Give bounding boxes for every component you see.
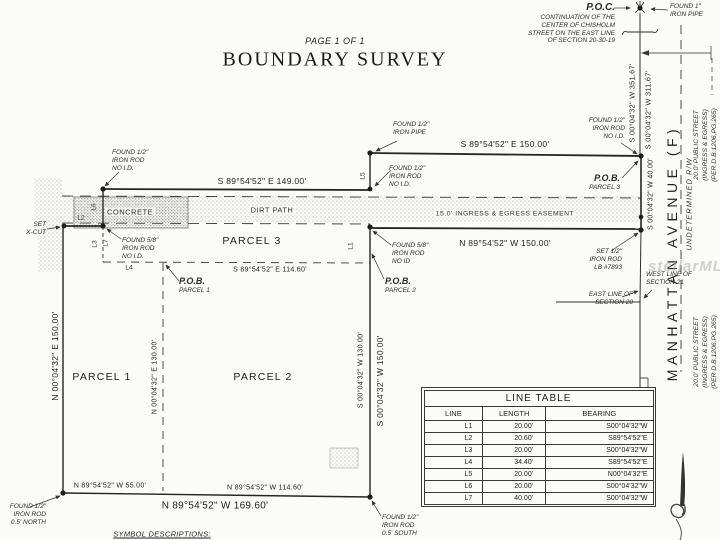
line-tag-l6: L6 (91, 203, 98, 210)
pob-parcel2-label: P.O.B. PARCEL 2 (385, 276, 416, 295)
dim-east-150: S 00°04'32" W 150.00' (375, 335, 385, 426)
line-tag-l1: L1 (348, 242, 355, 249)
parcel-3-label: PARCEL 3 (222, 235, 281, 247)
concrete-area (34, 178, 188, 272)
dirt-path-label: DIRT PATH (249, 206, 296, 215)
dim-bottom-114: N 89°54'52" W 114.60' (227, 485, 303, 492)
col-header-line: LINE (424, 406, 483, 420)
line-tag-l3: L3 (92, 240, 99, 247)
dim-351: S 00°04'32" W 351.67' (628, 63, 637, 142)
line-tag-l7: L7 (103, 239, 110, 246)
pob-parcel3-label: P.O.B. PARCEL 3 (560, 173, 620, 192)
dim-west-150: N 00°04'32" E 150.00' (50, 311, 60, 400)
dim-mid-114: S 89°54'52" E 114.60' (233, 267, 307, 274)
parcel-2-label: PARCEL 2 (233, 371, 292, 383)
found-58-rod-2-label: FOUND 5/8" IRON ROD NO ID (392, 242, 428, 265)
page-label: PAGE 1 OF 1 (305, 36, 365, 46)
dim-bottom-55: N 89°54'52" W 55.00' (74, 483, 146, 490)
dim-311: S 00°04'32" W 311.67' (644, 71, 653, 150)
table-row: L3 20.00' S00°04'32"W (424, 444, 653, 456)
table-row: L7 40.00' S00°04'32"W (424, 492, 653, 504)
found-bl-label: FOUND 1/2" IRON ROD 0.5' NORTH (2, 503, 46, 526)
public-street-bottom-label: 20.0' PUBLIC STREET (INGRESS & EGRESS) (… (693, 315, 719, 389)
dim-top-149: S 89°54'52" E 149.00' (218, 176, 307, 186)
dim-n-150: N 89°54'52" W 150.00' (459, 238, 551, 248)
parcel-1-label: PARCEL 1 (72, 371, 131, 383)
found-half-pipe-label: FOUND 1/2" IRON PIPE (393, 121, 429, 137)
line-table: LINE TABLE LINE LENGTH BEARING L1 20.00'… (421, 387, 656, 507)
line-tag-l4: L4 (125, 265, 132, 272)
dim-mid-130: N 00°04'32" E 130.00' (152, 340, 159, 415)
stipple-patch (330, 448, 358, 468)
page-title: BOUNDARY SURVEY (223, 49, 448, 72)
dim-top-150: S 89°54'52" E 150.00' (461, 139, 550, 149)
found-br-label: FOUND 1/2" IRON ROD 0.5' SOUTH (382, 514, 418, 537)
poc-note: P.O.C. CONTINUATION OF THE CENTER OF CHI… (495, 2, 615, 45)
set-half-rod-label: SET 1/2" IRON ROD LB #7893 (562, 248, 622, 271)
line-tag-l2: L2 (77, 215, 84, 222)
easement-label: 15.0' INGRESS & EGRESS EASEMENT (434, 211, 576, 218)
table-row: L4 34.40' S89°54'52"E (424, 456, 653, 468)
line-tag-l5: L5 (360, 172, 367, 179)
public-street-top-label: 20.0' PUBLIC STREET (INGRESS & EGRESS) (… (693, 108, 719, 182)
dim-bottom-169: N 89°54'52" W 169.60' (162, 501, 269, 512)
watermark: stellarMLS (648, 258, 720, 275)
dim-east-130: S 00°04'32" W 130.00' (358, 332, 365, 408)
found-half-rod-tr-label: FOUND 1/2" IRON ROD NO I.D. (565, 117, 625, 140)
table-row: L6 20.00' S00°04'32"W (424, 480, 653, 492)
east-line-label: EAST LINE OF SECTION 20 (578, 291, 633, 307)
found-half-rod-mid-label: FOUND 1/2" IRON ROD NO I.D. (389, 165, 425, 188)
found-half-rod-left-label: FOUND 1/2" IRON ROD NO I.D. (112, 149, 148, 172)
table-row: L2 20.60' S89°54'52"E (424, 432, 653, 444)
col-header-length: LENGTH (483, 406, 546, 420)
street-name-label: MANHATTAN AVENUE (F) (664, 125, 680, 381)
set-x-cut-label: SET X-CUT (10, 221, 46, 237)
table-row: L1 20.00' S00°04'32"W (424, 420, 653, 432)
decorative-mark (671, 452, 685, 540)
dim-40: S 00°04'32" W 40.00' (648, 158, 655, 230)
poc-symbol (635, 1, 645, 13)
concrete-label: CONCRETE (105, 208, 155, 217)
found-58-rod-1-label: FOUND 5/8" IRON ROD NO I.D. (122, 237, 158, 260)
dim-arrowhead (641, 50, 649, 56)
found-1in-pipe-label: FOUND 1" IRON PIPE (670, 3, 703, 19)
line-table-title: LINE TABLE (424, 390, 653, 406)
pob-parcel1-label: P.O.B. PARCEL 1 (179, 276, 210, 295)
poc-title: P.O.C. (495, 2, 615, 14)
table-row: L5 20.00' N00°04'32"E (424, 468, 653, 480)
col-header-bearing: BEARING (546, 406, 653, 420)
survey-page: PAGE 1 OF 1 BOUNDARY SURVEY P.O.C. CONTI… (0, 0, 720, 540)
symbol-descriptions-label: SYMBOL DESCRIPTIONS: (113, 530, 211, 539)
